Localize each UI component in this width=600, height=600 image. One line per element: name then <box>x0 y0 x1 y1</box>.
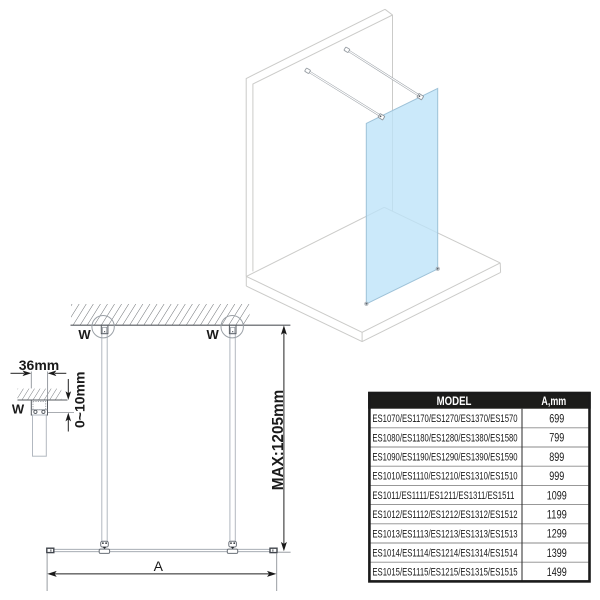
svg-text:36mm: 36mm <box>19 357 59 373</box>
svg-text:1099: 1099 <box>547 488 567 502</box>
svg-text:999: 999 <box>549 469 564 483</box>
svg-text:0~10mm: 0~10mm <box>72 372 88 428</box>
svg-text:ES1080/ES1180/ES1280/ES1380/ES: ES1080/ES1180/ES1280/ES1380/ES1580 <box>372 432 517 444</box>
svg-text:W: W <box>206 327 219 342</box>
svg-text:MAX:1205mm: MAX:1205mm <box>270 390 287 491</box>
svg-text:A,mm: A,mm <box>541 394 566 408</box>
svg-text:ES1010/ES1110/ES1210/ES1310/ES: ES1010/ES1110/ES1210/ES1310/ES1510 <box>372 471 517 483</box>
svg-text:1199: 1199 <box>547 508 567 522</box>
svg-text:ES1070/ES1170/ES1270/ES1370/ES: ES1070/ES1170/ES1270/ES1370/ES1570 <box>372 413 517 425</box>
svg-text:ES1011/ES1111/ES1211/ES1311/ES: ES1011/ES1111/ES1211/ES1311/ES1511 <box>372 490 514 502</box>
svg-text:W: W <box>78 327 91 342</box>
svg-text:ES1090/ES1190/ES1290/ES1390/ES: ES1090/ES1190/ES1290/ES1390/ES1590 <box>372 452 517 464</box>
svg-text:1399: 1399 <box>547 546 567 560</box>
svg-text:ES1015/ES1115/ES1215/ES1315/ES: ES1015/ES1115/ES1215/ES1315/ES1515 <box>372 567 517 579</box>
svg-text:A: A <box>154 558 164 574</box>
svg-text:ES1014/ES1114/ES1214/ES1314/ES: ES1014/ES1114/ES1214/ES1314/ES1514 <box>372 548 517 560</box>
svg-text:799: 799 <box>549 431 564 445</box>
svg-text:W: W <box>12 401 25 416</box>
svg-text:ES1012/ES1112/ES1212/ES1312/ES: ES1012/ES1112/ES1212/ES1312/ES1512 <box>372 509 517 521</box>
svg-text:699: 699 <box>549 412 564 426</box>
svg-text:1299: 1299 <box>547 527 567 541</box>
svg-text:1499: 1499 <box>547 565 567 579</box>
svg-text:MODEL: MODEL <box>437 394 472 408</box>
svg-text:899: 899 <box>549 450 564 464</box>
svg-text:ES1013/ES1113/ES1213/ES1313/ES: ES1013/ES1113/ES1213/ES1313/ES1513 <box>372 528 517 540</box>
